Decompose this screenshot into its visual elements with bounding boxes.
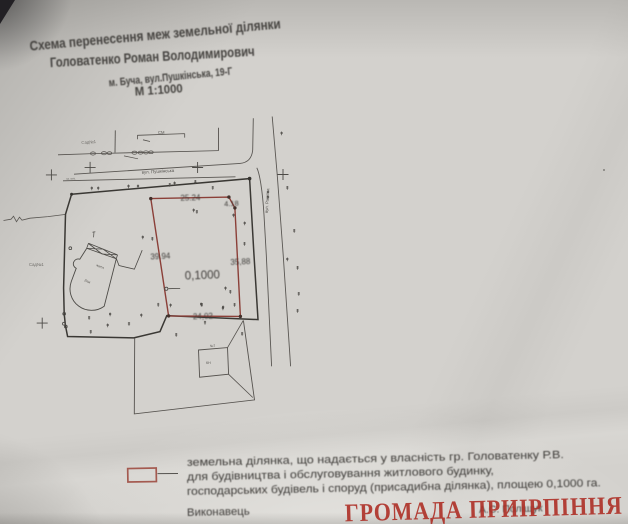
svg-text:ГРОМАДА ПРИІРПІННЯ: ГРОМАДА ПРИІРПІННЯ	[344, 491, 623, 524]
svg-text:35,88: 35,88	[230, 257, 251, 267]
svg-text:Сад№1: Сад№1	[81, 139, 97, 145]
svg-text:Виконавець: Виконавець	[187, 506, 250, 519]
svg-text:24,02: 24,02	[193, 312, 214, 322]
svg-text:земельна ділянка, що надається: земельна ділянка, що надається у власніс…	[187, 449, 564, 469]
svg-text:вул. Пушкінська: вул. Пушкінська	[142, 168, 175, 175]
svg-text:на зем.: на зем.	[66, 176, 76, 180]
svg-text:КН: КН	[206, 361, 211, 365]
svg-text:М 1:1000: М 1:1000	[134, 81, 183, 98]
svg-text:2пж: 2пж	[84, 278, 92, 284]
svg-text:4.18: 4.18	[224, 199, 239, 209]
svg-text:СМ: СМ	[158, 130, 165, 135]
svg-text:0,1000: 0,1000	[185, 269, 221, 282]
svg-text:25.24: 25.24	[180, 193, 201, 203]
svg-text:житл: житл	[96, 263, 105, 270]
svg-text:Сад№1: Сад№1	[29, 262, 44, 267]
svg-text:№7: №7	[210, 344, 215, 348]
svg-text:39.94: 39.94	[150, 251, 171, 261]
